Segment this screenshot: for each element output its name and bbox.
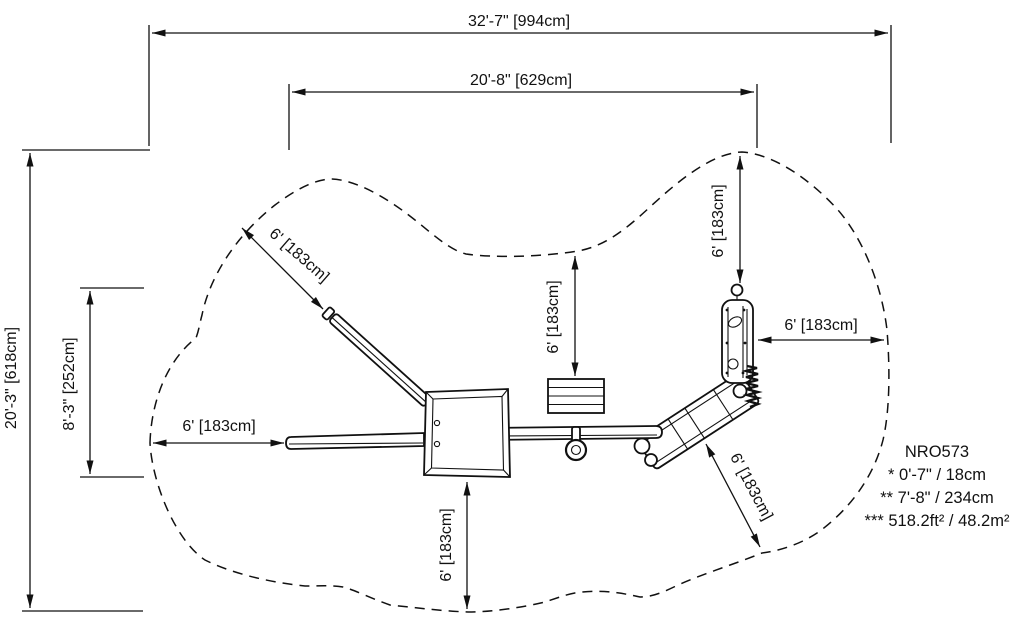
dim-clearance-right-label: 6' [183cm] <box>784 317 857 334</box>
dim-clearance-diag1-label: 6' [183cm] <box>266 225 332 286</box>
note-line-2: ** 7'-8" / 234cm <box>880 489 994 507</box>
dim-overall-height-label: 20'-3" [618cm] <box>3 327 20 429</box>
drawing-canvas: 32'-7" [994cm] 20'-8" [629cm] 20'-3" [61… <box>0 0 1024 620</box>
dim-clearance-below-label: 6' [183cm] <box>438 508 455 581</box>
dim-clearance-middle-label: 6' [183cm] <box>545 280 562 353</box>
dim-offset-height: 8'-3" [252cm] <box>61 291 90 474</box>
dim-clearance-top-right: 6' [183cm] <box>710 156 740 283</box>
note-block: NRO573 * 0'-7" / 18cm ** 7'-8" / 234cm *… <box>865 443 1010 530</box>
dim-offset-height-label: 8'-3" [252cm] <box>61 337 78 430</box>
left-beam <box>286 433 424 449</box>
dim-clearance-middle: 6' [183cm] <box>545 256 575 376</box>
dim-clearance-diag2-label: 6' [183cm] <box>726 451 775 524</box>
note-line-1: * 0'-7" / 18cm <box>888 466 986 484</box>
dim-clearance-below-platform: 6' [183cm] <box>438 482 467 609</box>
panel-top-ball <box>732 285 743 296</box>
dim-inner-width-label: 20'-8" [629cm] <box>470 72 572 89</box>
note-line-3: *** 518.2ft² / 48.2m² <box>865 512 1010 530</box>
overhead-ladder <box>322 307 432 408</box>
playground-equipment <box>286 285 760 478</box>
dim-overall-width-label: 32'-7" [994cm] <box>468 13 570 30</box>
dim-clearance-left: 6' [183cm] <box>153 418 284 443</box>
slide-foot-ball <box>645 454 657 466</box>
dim-overall-height: 20'-3" [618cm] <box>3 153 30 608</box>
slide-foot-ball <box>635 439 650 454</box>
dim-inner-width: 20'-8" [629cm] <box>292 72 754 92</box>
use-zone-boundary <box>150 152 889 612</box>
dimensions: 32'-7" [994cm] 20'-8" [629cm] 20'-3" [61… <box>3 13 888 609</box>
steps <box>548 379 604 413</box>
dim-overall-width: 32'-7" [994cm] <box>152 13 888 33</box>
dim-clearance-upper-left-diagonal: 6' [183cm] <box>242 225 332 309</box>
dim-clearance-lower-right-diagonal: 6' [183cm] <box>706 444 776 547</box>
dim-clearance-right: 6' [183cm] <box>758 317 884 340</box>
dim-clearance-left-label: 6' [183cm] <box>182 418 255 435</box>
platform <box>424 389 510 477</box>
model-number: NRO573 <box>905 443 969 461</box>
plan-drawing: 32'-7" [994cm] 20'-8" [629cm] 20'-3" [61… <box>0 0 1024 620</box>
dim-clearance-topright-label: 6' [183cm] <box>710 184 727 257</box>
